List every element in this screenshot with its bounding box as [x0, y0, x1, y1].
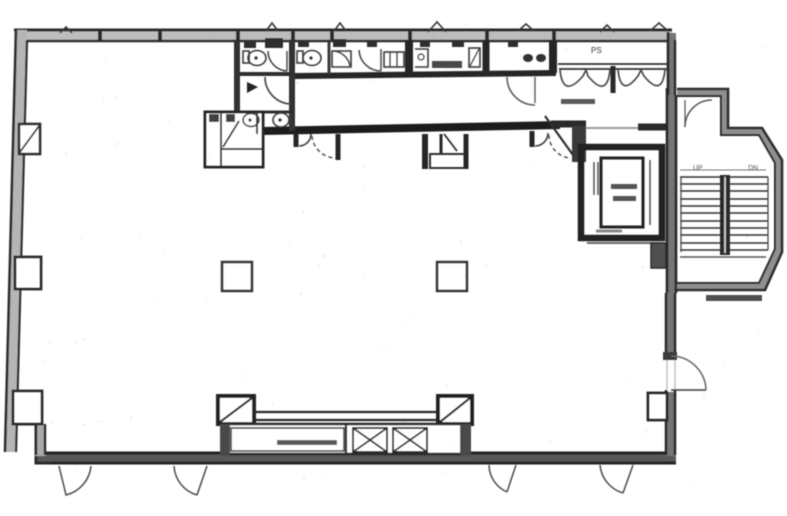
svg-text:UP: UP — [693, 165, 703, 172]
svg-text:DN: DN — [748, 165, 758, 172]
svg-text:PS: PS — [591, 46, 602, 55]
